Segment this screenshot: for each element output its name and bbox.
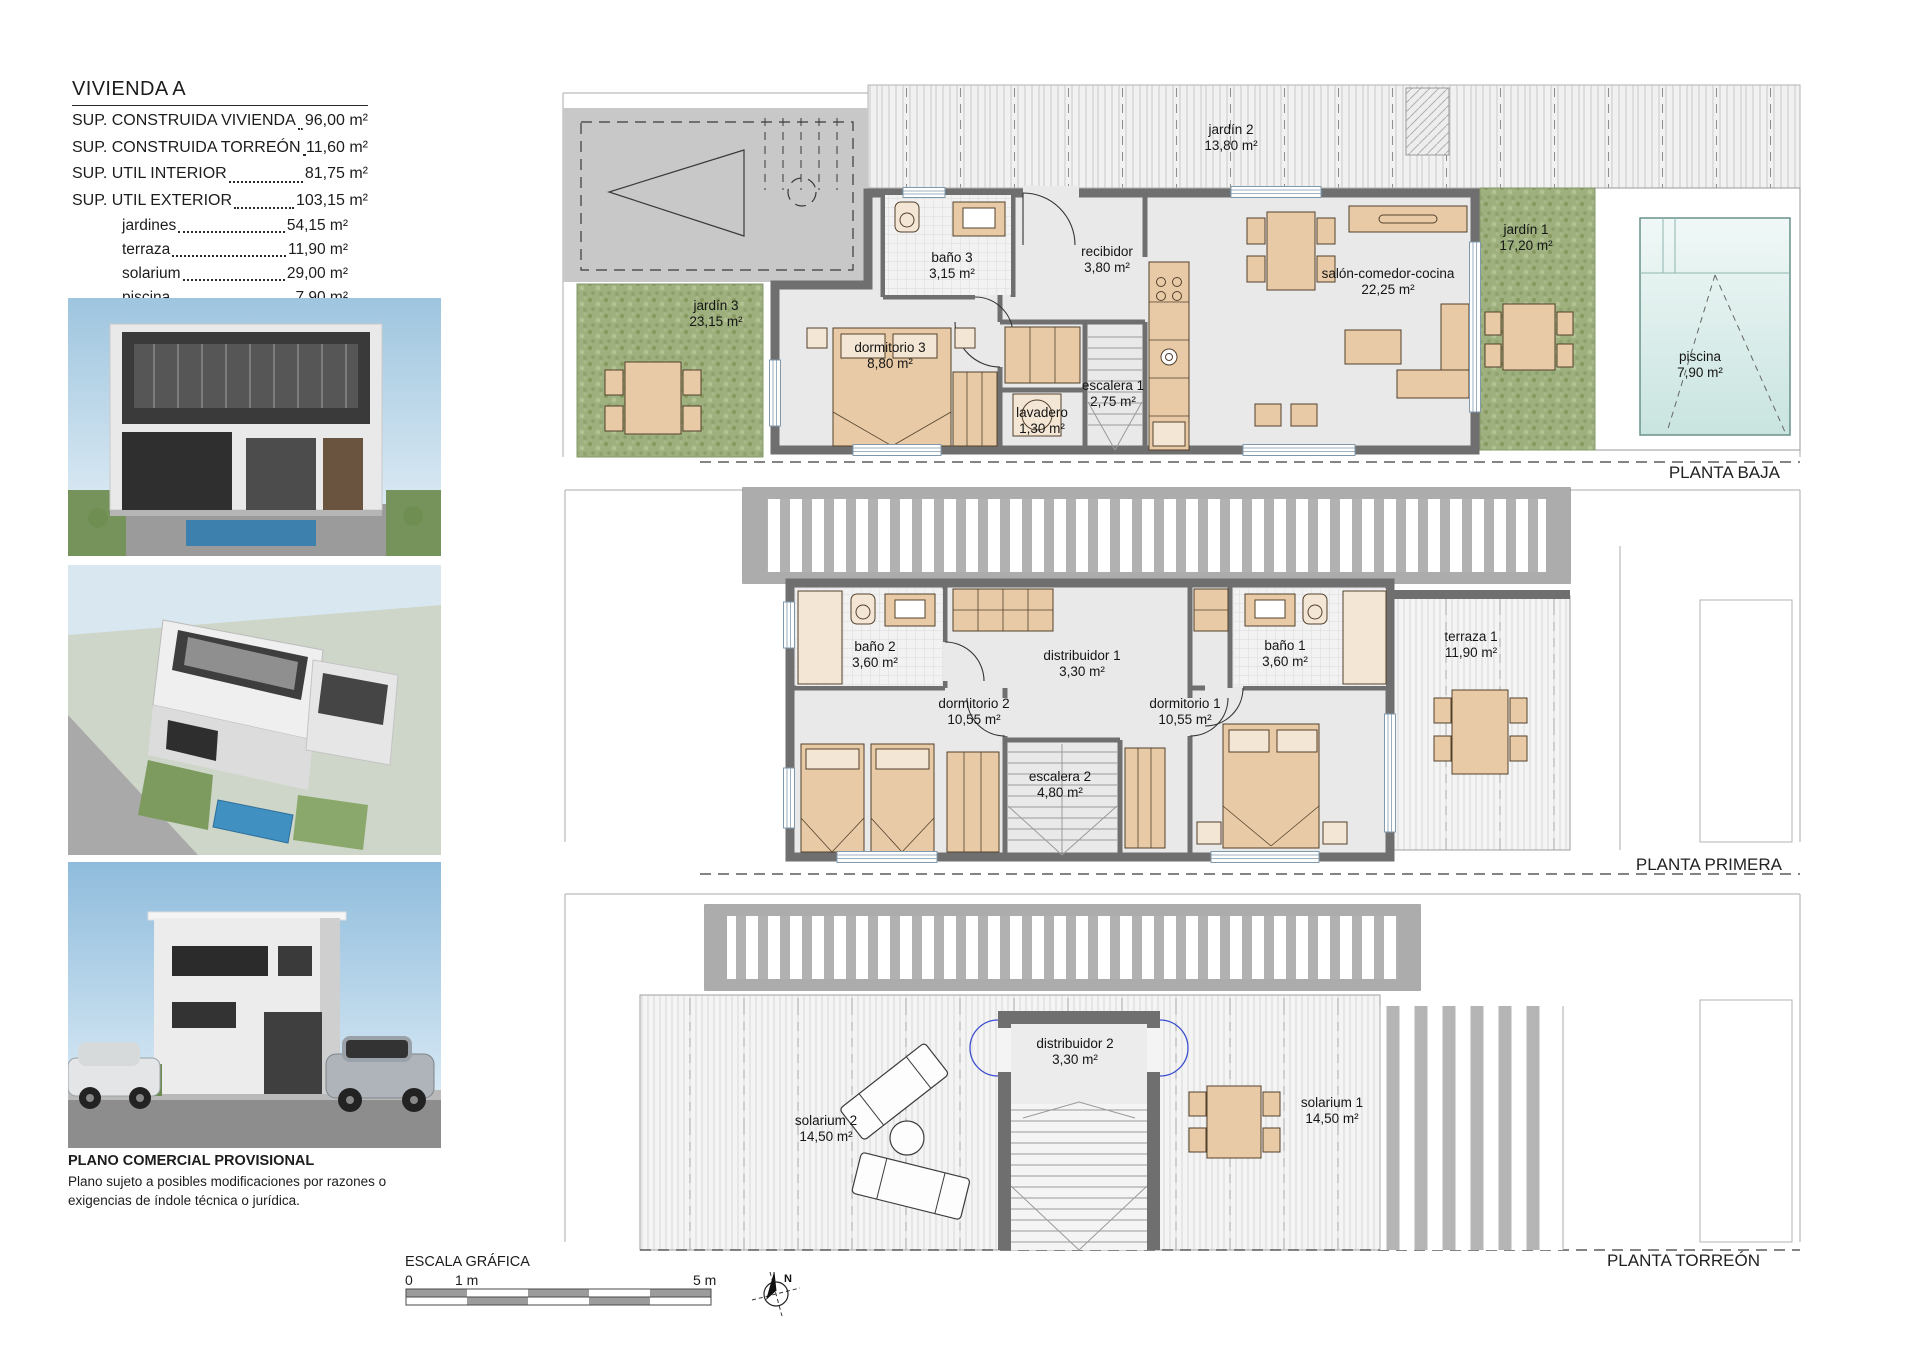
spec-row: solarium29,00 m² xyxy=(122,262,348,286)
kitchen xyxy=(1149,262,1189,450)
disclaimer: PLANO COMERCIAL PROVISIONAL Plano sujeto… xyxy=(68,1152,416,1210)
planta-primera-plan: baño 23,60 m² distribuidor 13,30 m² baño… xyxy=(555,486,1820,886)
room-label-bano-3: baño 33,15 m² xyxy=(929,250,975,281)
disclaimer-title: PLANO COMERCIAL PROVISIONAL xyxy=(68,1153,314,1169)
planta-torreon-plan: solarium 214,50 m² distribuidor 23,30 m²… xyxy=(555,886,1820,1276)
hatched-block xyxy=(1406,88,1449,155)
svg-text:2,75 m²: 2,75 m² xyxy=(1090,394,1136,409)
pergola-band xyxy=(705,905,1420,990)
garden-table xyxy=(625,362,681,434)
svg-text:lavadero: lavadero xyxy=(1016,405,1068,420)
spec-row: jardines54,15 m² xyxy=(122,214,348,238)
title-block: VIVIENDA A SUP. CONSTRUIDA VIVIENDA96,00… xyxy=(72,78,382,310)
spec-value: 103,15 m² xyxy=(296,188,368,215)
spec-label: solarium xyxy=(122,262,181,286)
svg-text:3,30 m²: 3,30 m² xyxy=(1052,1052,1098,1067)
dotted-leader xyxy=(172,255,286,257)
svg-text:dormitorio 3: dormitorio 3 xyxy=(854,340,925,355)
room-label-jardin-3: jardín 323,15 m² xyxy=(689,298,743,329)
svg-text:distribuidor 1: distribuidor 1 xyxy=(1043,648,1120,663)
svg-text:distribuidor 2: distribuidor 2 xyxy=(1036,1036,1113,1051)
room-label-bano-2: baño 23,60 m² xyxy=(852,639,898,670)
svg-text:dormitorio 2: dormitorio 2 xyxy=(938,696,1009,711)
dotted-leader xyxy=(234,207,294,209)
dotted-leader xyxy=(303,154,305,156)
spec-label: SUP. UTIL EXTERIOR xyxy=(72,188,232,215)
svg-text:22,25 m²: 22,25 m² xyxy=(1361,282,1415,297)
window xyxy=(1211,852,1319,863)
spec-row: terraza11,90 m² xyxy=(122,238,348,262)
svg-text:3,30 m²: 3,30 m² xyxy=(1059,664,1105,679)
entrance-opening xyxy=(1023,186,1079,198)
north-arrow: N xyxy=(748,1266,804,1322)
sub-spec-list: jardines54,15 m² terraza11,90 m² solariu… xyxy=(72,214,382,310)
scale-tick-1m: 1 m xyxy=(455,1272,478,1288)
terrace-table xyxy=(1452,690,1508,774)
svg-text:jardín 1: jardín 1 xyxy=(1502,222,1548,237)
round-table xyxy=(890,1121,924,1155)
scale-tick-0: 0 xyxy=(405,1272,413,1288)
svg-text:3,60 m²: 3,60 m² xyxy=(852,655,898,670)
spec-value: 29,00 m² xyxy=(287,262,348,286)
spec-label: terraza xyxy=(122,238,170,262)
window xyxy=(784,768,795,828)
dotted-leader xyxy=(178,231,285,233)
window xyxy=(903,188,945,198)
svg-text:baño 3: baño 3 xyxy=(931,250,972,265)
svg-text:13,80 m²: 13,80 m² xyxy=(1204,138,1258,153)
neighbor-plot-outline xyxy=(1700,600,1792,842)
spec-value: 96,00 m² xyxy=(305,108,368,135)
svg-text:dormitorio 1: dormitorio 1 xyxy=(1149,696,1220,711)
spec-row: SUP. UTIL INTERIOR81,75 m² xyxy=(72,161,368,188)
svg-text:10,55 m²: 10,55 m² xyxy=(947,712,1001,727)
pergola-band xyxy=(743,488,1570,583)
room-label-dormitorio-2: dormitorio 210,55 m² xyxy=(938,696,1009,727)
sliding-door xyxy=(1385,714,1396,832)
spec-value: 11,60 m² xyxy=(306,135,368,162)
window xyxy=(853,445,941,456)
window xyxy=(1243,445,1355,456)
svg-text:piscina: piscina xyxy=(1679,349,1722,364)
closet xyxy=(1005,327,1080,383)
room-label-bano-1: baño 13,60 m² xyxy=(1262,638,1308,669)
svg-text:11,90 m²: 11,90 m² xyxy=(1445,645,1498,660)
svg-text:escalera 2: escalera 2 xyxy=(1029,769,1091,784)
spec-row: SUP. CONSTRUIDA VIVIENDA96,00 m² xyxy=(72,108,368,135)
sideboard xyxy=(1349,206,1467,232)
svg-text:baño 2: baño 2 xyxy=(854,639,895,654)
plan-title-baja: PLANTA BAJA xyxy=(1669,463,1781,482)
room-label-dormitorio-1: dormitorio 110,55 m² xyxy=(1149,696,1220,727)
garden-table xyxy=(1503,304,1555,370)
spec-label: jardines xyxy=(122,214,176,238)
svg-text:14,50 m²: 14,50 m² xyxy=(1305,1111,1359,1126)
window xyxy=(1231,187,1321,198)
scale-numbers: 0 1 m 5 m xyxy=(405,1270,735,1288)
svg-text:recibidor: recibidor xyxy=(1081,244,1133,259)
scale-bar-graphic xyxy=(405,1288,712,1307)
room-label-terraza-1: terraza 111,90 m² xyxy=(1444,629,1497,660)
plan-sheet: VIVIENDA A SUP. CONSTRUIDA VIVIENDA96,00… xyxy=(0,0,1920,1357)
spec-label: SUP. CONSTRUIDA VIVIENDA xyxy=(72,108,296,135)
pool xyxy=(1640,218,1790,435)
garden-2-strip xyxy=(868,85,1800,188)
neighbor-plot-outline xyxy=(1700,1000,1792,1242)
svg-text:4,80 m²: 4,80 m² xyxy=(1037,785,1083,800)
room-label-recibidor: recibidor3,80 m² xyxy=(1081,244,1133,275)
window xyxy=(837,852,937,863)
scale-bar: ESCALA GRÁFICA 0 1 m 5 m xyxy=(405,1254,735,1312)
svg-text:salón-comedor-cocina: salón-comedor-cocina xyxy=(1322,266,1455,281)
sliding-door xyxy=(1470,242,1481,412)
spec-value: 54,15 m² xyxy=(287,214,348,238)
svg-text:solarium 2: solarium 2 xyxy=(795,1113,857,1128)
scale-title: ESCALA GRÁFICA xyxy=(405,1254,735,1270)
plan-title-primera: PLANTA PRIMERA xyxy=(1636,855,1783,874)
room-label-solarium-2: solarium 214,50 m² xyxy=(795,1113,857,1144)
plan-title-torreon: PLANTA TORREÓN xyxy=(1607,1251,1760,1270)
render-front-elevation xyxy=(68,298,441,556)
slat-screen xyxy=(1380,1006,1563,1250)
room-label-piscina: piscina7,90 m² xyxy=(1677,349,1723,380)
window xyxy=(784,602,795,648)
svg-text:23,15 m²: 23,15 m² xyxy=(689,314,743,329)
svg-text:terraza 1: terraza 1 xyxy=(1444,629,1497,644)
svg-text:14,50 m²: 14,50 m² xyxy=(799,1129,853,1144)
north-label: N xyxy=(784,1273,792,1285)
spec-value: 11,90 m² xyxy=(288,238,348,262)
dotted-leader xyxy=(298,128,303,130)
disclaimer-body: Plano sujeto a posibles modificaciones p… xyxy=(68,1173,416,1210)
svg-text:jardín 2: jardín 2 xyxy=(1207,122,1253,137)
svg-text:baño 1: baño 1 xyxy=(1264,638,1305,653)
svg-text:7,90 m²: 7,90 m² xyxy=(1677,365,1723,380)
room-label-escalera-1: escalera 12,75 m² xyxy=(1082,378,1144,409)
svg-text:3,60 m²: 3,60 m² xyxy=(1262,654,1308,669)
spec-value: 81,75 m² xyxy=(305,161,368,188)
room-label-jardin-1: jardín 117,20 m² xyxy=(1499,222,1553,253)
svg-text:3,15 m²: 3,15 m² xyxy=(929,266,975,281)
render-street-view xyxy=(68,862,441,1148)
svg-text:17,20 m²: 17,20 m² xyxy=(1499,238,1553,253)
svg-text:8,80 m²: 8,80 m² xyxy=(867,356,913,371)
spec-row: SUP. UTIL EXTERIOR103,15 m² xyxy=(72,188,368,215)
dotted-leader xyxy=(229,181,303,183)
svg-text:solarium 1: solarium 1 xyxy=(1301,1095,1363,1110)
svg-text:10,55 m²: 10,55 m² xyxy=(1158,712,1212,727)
spec-label: SUP. UTIL INTERIOR xyxy=(72,161,227,188)
dotted-leader xyxy=(183,279,285,281)
render-aerial-view xyxy=(68,565,441,855)
room-label-escalera-2: escalera 24,80 m² xyxy=(1029,769,1091,800)
svg-text:3,80 m²: 3,80 m² xyxy=(1084,260,1130,275)
bed-single-pair xyxy=(801,744,999,852)
coffee-table xyxy=(1345,330,1401,364)
room-label-jardin-2: jardín 213,80 m² xyxy=(1204,122,1258,153)
carport-area xyxy=(563,108,868,282)
page-title: VIVIENDA A xyxy=(72,78,368,106)
svg-text:jardín 3: jardín 3 xyxy=(692,298,738,313)
svg-text:1,30 m²: 1,30 m² xyxy=(1019,421,1065,436)
spec-row: SUP. CONSTRUIDA TORREÓN11,60 m² xyxy=(72,135,368,162)
svg-text:escalera 1: escalera 1 xyxy=(1082,378,1144,393)
window xyxy=(770,360,781,426)
room-label-solarium-1: solarium 114,50 m² xyxy=(1301,1095,1363,1126)
spec-label: SUP. CONSTRUIDA TORREÓN xyxy=(72,135,301,162)
scale-tick-5m: 5 m xyxy=(693,1272,716,1288)
planta-baja-plan: jardín 213,80 m² jardín 323,15 m² baño 3… xyxy=(555,72,1820,484)
room-label-lavadero: lavadero1,30 m² xyxy=(1016,405,1068,436)
